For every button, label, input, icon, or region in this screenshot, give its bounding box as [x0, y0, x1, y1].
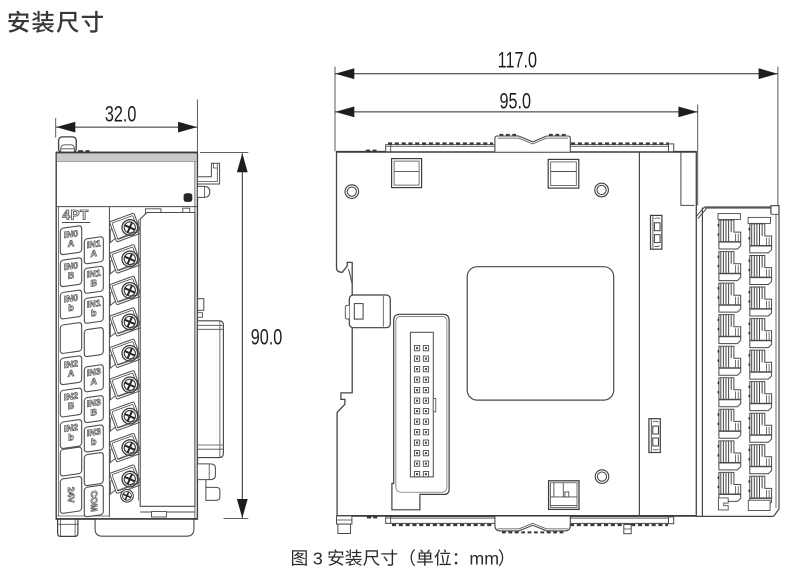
svg-text:b: b [91, 308, 97, 319]
svg-text:b: b [68, 302, 74, 313]
svg-text:B: B [91, 407, 98, 418]
svg-text:B: B [91, 278, 98, 289]
svg-text:32.0: 32.0 [105, 102, 137, 127]
svg-text:A: A [91, 248, 98, 259]
svg-text:24V: 24V [66, 486, 76, 503]
svg-text:95.0: 95.0 [500, 89, 532, 114]
svg-text:A: A [68, 238, 75, 249]
svg-text:A: A [68, 368, 75, 379]
svg-text:3: 3 [313, 548, 323, 568]
svg-text:A: A [91, 376, 98, 387]
svg-text:B: B [68, 270, 75, 281]
svg-text:mm: mm [469, 548, 499, 568]
svg-text:b: b [68, 432, 74, 443]
svg-text:COM: COM [89, 490, 99, 512]
svg-text:b: b [91, 436, 97, 447]
svg-text:90.0: 90.0 [251, 325, 283, 350]
svg-text:117.0: 117.0 [498, 48, 537, 73]
svg-text:4PT: 4PT [63, 208, 90, 223]
svg-text:B: B [68, 400, 75, 411]
